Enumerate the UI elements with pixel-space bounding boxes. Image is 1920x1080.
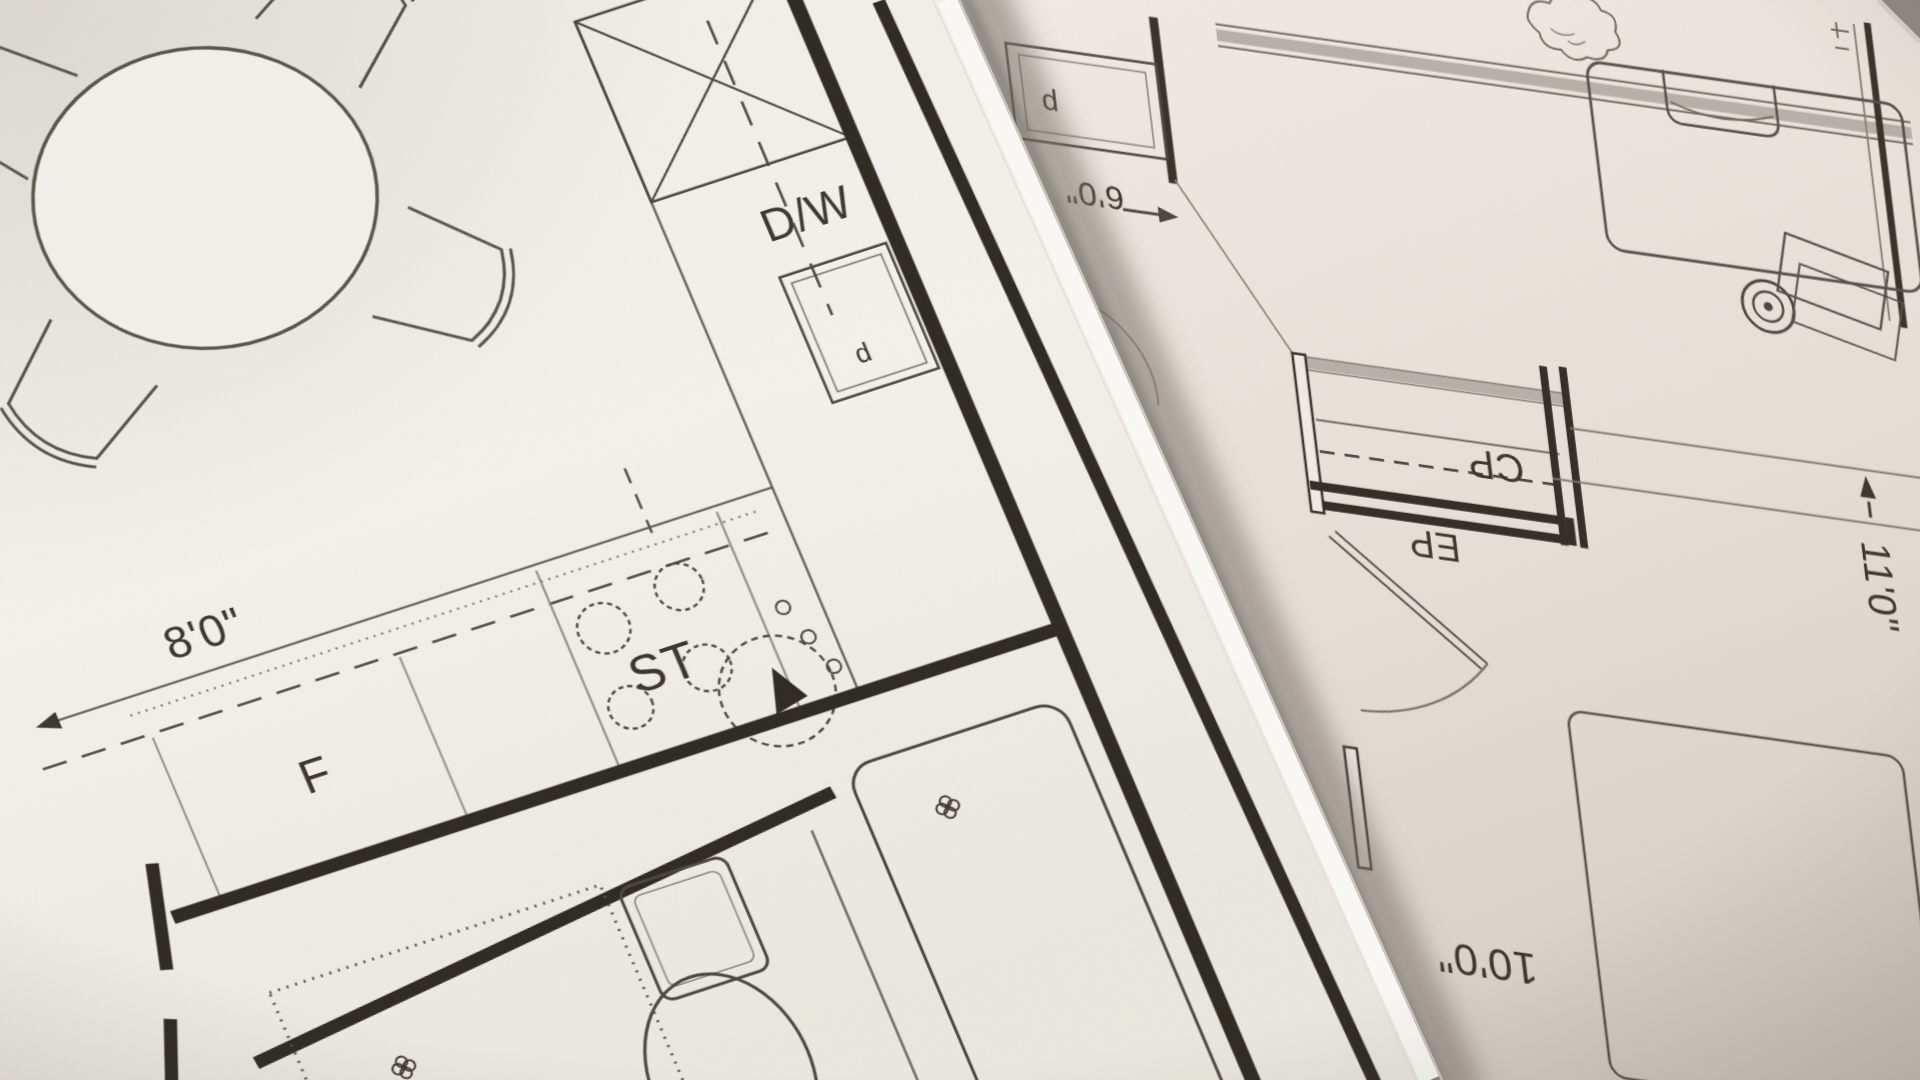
floor-plan-scene: p 6'0" CP EP	[0, 0, 1920, 1080]
floor-plan-photo: p 6'0" CP EP	[0, 0, 1920, 1080]
photo-vignette	[0, 0, 1920, 1080]
